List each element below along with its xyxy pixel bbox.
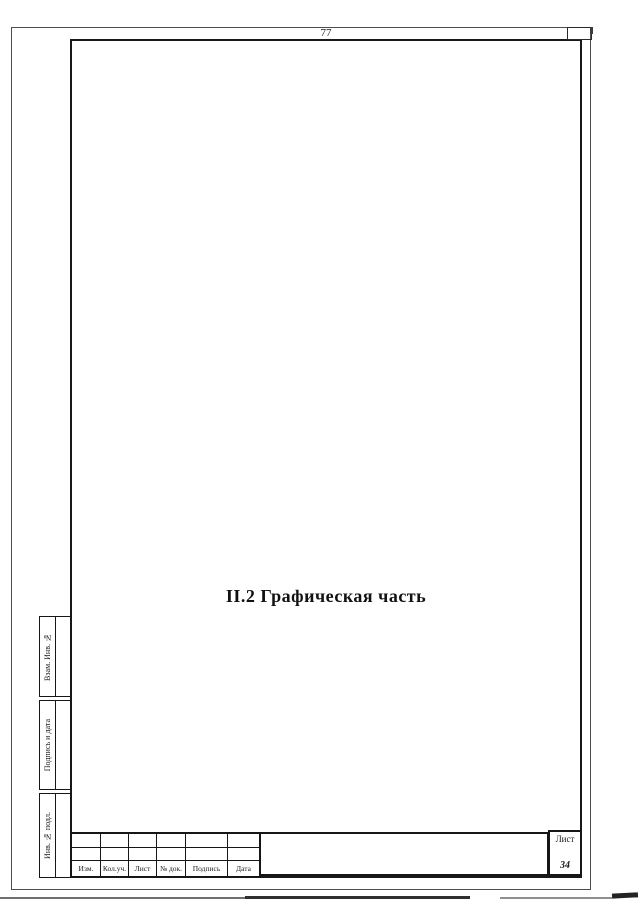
scanned-document-page: 77 II.2 Графическая часть Взам. Инв. № П… <box>0 0 640 905</box>
stamp-cell-empty <box>72 848 101 861</box>
side-box-blank-cell <box>56 701 70 789</box>
side-box-inv-podl: Инв. № подл. <box>39 793 71 878</box>
scan-artifact-line <box>0 897 245 899</box>
side-box-label-cell: Инв. № подл. <box>40 794 56 877</box>
stamp-cell-empty <box>157 834 186 848</box>
stamp-header-data: Дата <box>228 861 259 876</box>
scan-artifact-line <box>245 896 470 899</box>
stamp-cell-empty <box>186 834 228 848</box>
scan-artifact-blob <box>612 892 638 898</box>
stamp-header-koluch: Кол.уч. <box>101 861 129 876</box>
drawing-frame <box>70 39 582 878</box>
stamp-header-ndok: № док. <box>157 861 186 876</box>
side-box-blank-cell <box>56 617 70 696</box>
side-box-vzam-inv: Взам. Инв. № <box>39 616 71 697</box>
stamp-cell-empty <box>101 848 129 861</box>
stamp-cell-empty <box>129 834 157 848</box>
stamp-cell-empty <box>129 848 157 861</box>
side-label-vzam-inv: Взам. Инв. № <box>43 633 52 681</box>
sheet-number-box: Лист 34 <box>548 830 582 876</box>
scan-artifact-line <box>500 897 612 899</box>
sheet-label: Лист <box>556 834 575 844</box>
side-label-inv-podl: Инв. № подл. <box>43 812 52 859</box>
page-title: II.2 Графическая часть <box>70 583 582 609</box>
stamp-cell-empty <box>186 848 228 861</box>
stamp-cell-empty <box>228 834 259 848</box>
side-box-blank-cell <box>56 794 70 877</box>
page-number-top: 77 <box>70 27 582 39</box>
side-label-podpis-data: Подпись и дата <box>43 719 52 771</box>
stamp-cell-empty <box>228 848 259 861</box>
side-box-podpis-data: Подпись и дата <box>39 700 71 790</box>
title-block-document-field <box>259 832 549 876</box>
side-box-label-cell: Взам. Инв. № <box>40 617 56 696</box>
stamp-header-izm: Изм. <box>72 861 101 876</box>
stamp-cell-empty <box>72 834 101 848</box>
sheet-number: 34 <box>560 860 570 871</box>
stamp-header-list: Лист <box>129 861 157 876</box>
stamp-header-podpis: Подпись <box>186 861 228 876</box>
scan-artifact-nub <box>590 27 593 34</box>
stamp-cell-empty <box>101 834 129 848</box>
side-box-label-cell: Подпись и дата <box>40 701 56 789</box>
stamp-cell-empty <box>157 848 186 861</box>
title-block-revision-table: Изм. Кол.уч. Лист № док. Подпись Дата <box>70 832 261 878</box>
